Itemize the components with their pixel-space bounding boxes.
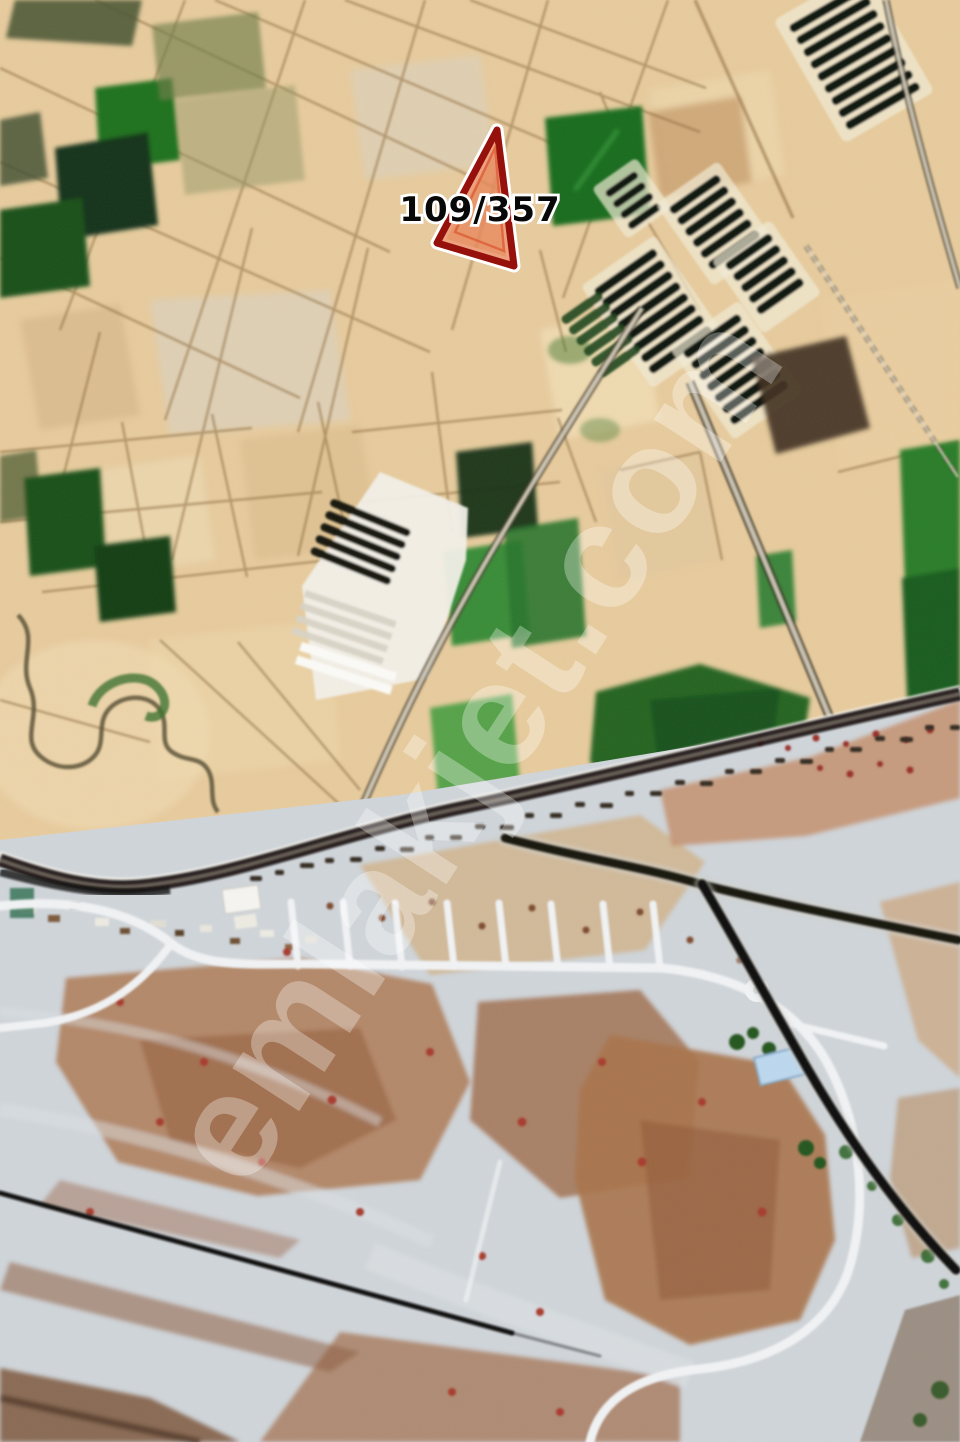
satellite-map: 109/357 emlakjet.com [0,0,960,1442]
parcel-number-label: 109/357 [399,190,560,230]
satellite-map-view: 109/357 emlakjet.com [0,0,960,1442]
